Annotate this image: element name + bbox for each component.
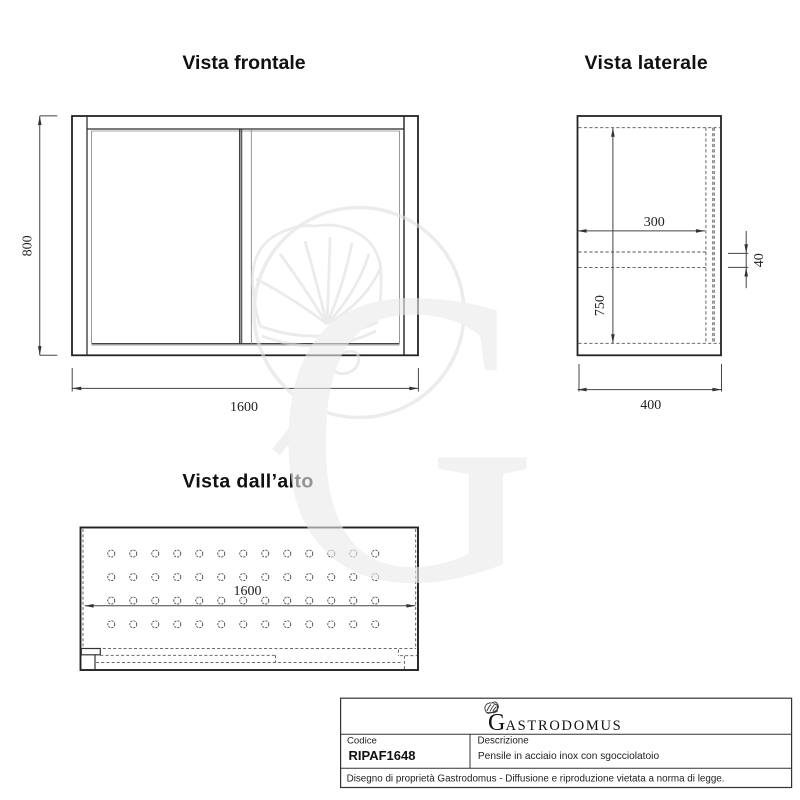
svg-text:G: G (273, 201, 538, 671)
svg-text:750: 750 (593, 295, 608, 316)
svg-text:40: 40 (752, 253, 767, 267)
svg-text:800: 800 (20, 235, 35, 256)
svg-text:400: 400 (640, 398, 661, 413)
svg-text:Pensile in acciaio inox con sg: Pensile in acciaio inox con sgocciolatoi… (478, 751, 660, 762)
svg-text:Vista laterale: Vista laterale (585, 52, 708, 74)
svg-text:ASTRODOMUS: ASTRODOMUS (506, 718, 623, 734)
svg-text:RIPAF1648: RIPAF1648 (349, 748, 416, 763)
svg-text:Vista frontale: Vista frontale (182, 52, 305, 74)
svg-text:300: 300 (644, 215, 665, 230)
svg-text:1600: 1600 (230, 400, 258, 415)
svg-text:Codice: Codice (347, 736, 377, 747)
svg-text:Disegno di proprietà Gastrodom: Disegno di proprietà Gastrodomus - Diffu… (347, 774, 725, 785)
svg-text:Descrizione: Descrizione (478, 736, 530, 747)
svg-text:1600: 1600 (234, 584, 262, 599)
svg-text:G: G (488, 710, 505, 736)
